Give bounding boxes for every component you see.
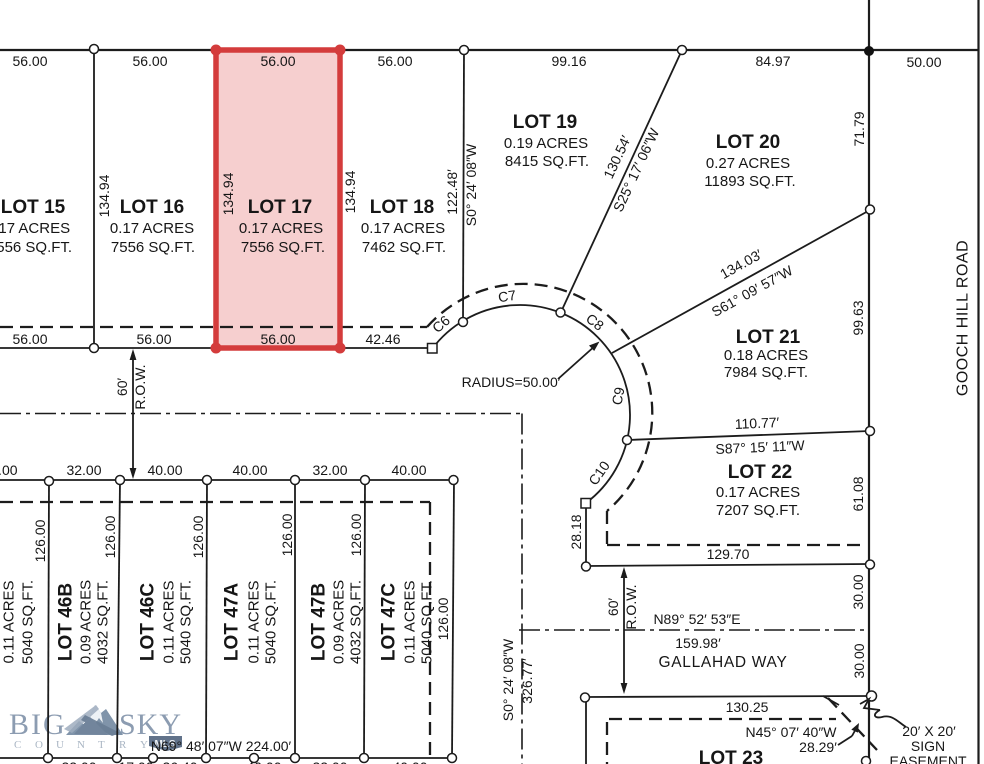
svg-text:130.25: 130.25 <box>726 699 769 715</box>
svg-text:126.00: 126.00 <box>32 519 48 562</box>
svg-text:7462 SQ.FT.: 7462 SQ.FT. <box>362 239 446 256</box>
svg-text:S0° 24′ 08″W: S0° 24′ 08″W <box>500 638 516 721</box>
svg-text:R.O.W.: R.O.W. <box>623 584 639 629</box>
svg-text:60′: 60′ <box>114 378 130 397</box>
svg-text:17.00: 17.00 <box>118 759 153 764</box>
svg-text:C9: C9 <box>608 385 627 406</box>
svg-text:GALLAHAD WAY: GALLAHAD WAY <box>659 654 788 671</box>
svg-text:0.17 ACRES: 0.17 ACRES <box>239 220 323 237</box>
svg-text:56.00: 56.00 <box>136 331 171 347</box>
svg-text:LOT 17: LOT 17 <box>248 197 312 218</box>
svg-text:50.00: 50.00 <box>906 54 941 70</box>
svg-text:EASEMENT: EASEMENT <box>889 753 966 764</box>
svg-text:LOT 47A: LOT 47A <box>222 583 243 661</box>
svg-text:LOT 19: LOT 19 <box>513 112 577 133</box>
svg-text:61.08: 61.08 <box>850 476 866 511</box>
svg-text:0.27 ACRES: 0.27 ACRES <box>706 155 790 172</box>
svg-text:11893 SQ.FT.: 11893 SQ.FT. <box>704 173 795 190</box>
svg-text:0.11 ACRES: 0.11 ACRES <box>161 580 178 663</box>
svg-text:326.77′: 326.77′ <box>519 658 535 704</box>
svg-text:O: O <box>35 739 43 751</box>
svg-text:GOOCH HILL ROAD: GOOCH HILL ROAD <box>955 240 972 396</box>
svg-text:30.00: 30.00 <box>851 643 867 678</box>
svg-text:C7: C7 <box>497 287 517 305</box>
svg-text:40.00: 40.00 <box>246 759 281 764</box>
svg-text:40.00: 40.00 <box>391 462 426 478</box>
svg-text:5040 SQ.FT.: 5040 SQ.FT. <box>263 580 280 664</box>
svg-text:4032 SQ.FT.: 4032 SQ.FT. <box>95 580 112 664</box>
svg-text:40.00: 40.00 <box>232 462 267 478</box>
svg-text:LOT 46B: LOT 46B <box>56 583 77 661</box>
svg-text:56.00: 56.00 <box>377 53 412 69</box>
svg-text:LOT 18: LOT 18 <box>370 197 434 218</box>
svg-text:RADIUS=50.00′: RADIUS=50.00′ <box>462 374 561 390</box>
svg-text:7207 SQ.FT.: 7207 SQ.FT. <box>716 502 800 519</box>
svg-text:134.94: 134.94 <box>220 172 236 215</box>
svg-text:42.46: 42.46 <box>365 331 400 347</box>
svg-text:56.00: 56.00 <box>260 331 295 347</box>
svg-text:LOT 20: LOT 20 <box>716 132 780 153</box>
svg-text:Y: Y <box>140 739 148 751</box>
svg-text:N69° 48′ 07″W 224.00′: N69° 48′ 07″W 224.00′ <box>151 738 292 754</box>
svg-text:134.94: 134.94 <box>96 174 112 217</box>
svg-text:159.98′: 159.98′ <box>675 635 721 651</box>
svg-text:U: U <box>56 739 64 751</box>
svg-text:56.00: 56.00 <box>12 331 47 347</box>
svg-text:0.11 ACRES: 0.11 ACRES <box>402 580 419 663</box>
svg-text:32.00: 32.00 <box>312 759 347 764</box>
svg-text:122.48′: 122.48′ <box>444 169 460 215</box>
svg-text:60′: 60′ <box>605 598 621 617</box>
svg-text:T: T <box>98 739 105 751</box>
svg-text:28.18: 28.18 <box>568 514 584 549</box>
svg-text:40.00: 40.00 <box>147 462 182 478</box>
svg-text:LOT 15: LOT 15 <box>1 197 66 218</box>
svg-text:126.00: 126.00 <box>348 513 364 556</box>
svg-text:0.09 ACRES: 0.09 ACRES <box>331 580 348 664</box>
svg-text:0.09 ACRES: 0.09 ACRES <box>78 580 95 664</box>
svg-text:28.29′: 28.29′ <box>799 739 837 755</box>
svg-text:5040 SQ.FT.: 5040 SQ.FT. <box>20 580 37 664</box>
svg-text:7556 SQ.FT.: 7556 SQ.FT. <box>111 239 195 256</box>
svg-text:LOT 22: LOT 22 <box>728 462 792 483</box>
svg-text:30.00: 30.00 <box>850 574 866 609</box>
svg-text:R.O.W.: R.O.W. <box>132 364 148 409</box>
svg-text:99.16: 99.16 <box>551 53 586 69</box>
svg-text:126.00: 126.00 <box>190 515 206 558</box>
svg-text:7556 SQ.FT.: 7556 SQ.FT. <box>0 239 72 256</box>
svg-text:0.11 ACRES: 0.11 ACRES <box>246 580 263 663</box>
svg-text:56.00: 56.00 <box>12 53 47 69</box>
svg-text:BIG: BIG <box>9 708 67 741</box>
svg-text:110.77′: 110.77′ <box>734 414 779 432</box>
svg-text:0.17 ACRES: 0.17 ACRES <box>716 484 800 501</box>
svg-text:32.00: 32.00 <box>312 462 347 478</box>
svg-text:84.97: 84.97 <box>755 53 790 69</box>
svg-text:0.17 ACRES: 0.17 ACRES <box>0 220 70 237</box>
svg-text:126.00: 126.00 <box>435 597 451 640</box>
svg-text:0.19 ACRES: 0.19 ACRES <box>504 135 588 152</box>
svg-text:56.00: 56.00 <box>132 53 167 69</box>
svg-text:SIGN: SIGN <box>911 738 945 754</box>
svg-text:C: C <box>14 739 21 751</box>
svg-text:LOT 46C: LOT 46C <box>138 583 159 661</box>
svg-text:LOT 21: LOT 21 <box>736 327 801 348</box>
svg-text:LOT 47C: LOT 47C <box>379 583 400 661</box>
svg-text:7556 SQ.FT.: 7556 SQ.FT. <box>241 239 325 256</box>
svg-text:LOT 23: LOT 23 <box>699 748 763 764</box>
svg-text:32.00: 32.00 <box>66 462 101 478</box>
svg-text:5040 SQ.FT.: 5040 SQ.FT. <box>419 580 436 664</box>
svg-text:N: N <box>77 739 85 751</box>
svg-text:134.94: 134.94 <box>342 170 358 213</box>
svg-text:LOT 16: LOT 16 <box>120 197 184 218</box>
svg-text:7984 SQ.FT.: 7984 SQ.FT. <box>724 364 808 381</box>
svg-text:32.00: 32.00 <box>61 759 96 764</box>
svg-text:40.00: 40.00 <box>0 462 18 478</box>
svg-text:56.00: 56.00 <box>260 53 295 69</box>
svg-text:0.18 ACRES: 0.18 ACRES <box>724 347 808 364</box>
svg-text:126.00: 126.00 <box>279 513 295 556</box>
svg-text:0.17 ACRES: 0.17 ACRES <box>110 220 194 237</box>
svg-text:26.40: 26.40 <box>162 759 197 764</box>
svg-text:99.63: 99.63 <box>850 300 866 335</box>
svg-text:5040 SQ.FT.: 5040 SQ.FT. <box>178 580 195 664</box>
svg-text:R: R <box>119 739 127 751</box>
svg-text:N89° 52′ 53″E: N89° 52′ 53″E <box>653 611 740 627</box>
svg-text:40.00: 40.00 <box>392 759 427 764</box>
svg-text:0.11 ACRES: 0.11 ACRES <box>1 580 18 663</box>
svg-text:LOT 47B: LOT 47B <box>309 583 330 661</box>
svg-text:71.79: 71.79 <box>851 111 867 146</box>
svg-text:8415 SQ.FT.: 8415 SQ.FT. <box>505 153 589 170</box>
svg-text:N45° 07′ 40″W: N45° 07′ 40″W <box>746 724 838 740</box>
svg-text:126.00: 126.00 <box>102 515 118 558</box>
svg-text:4032 SQ.FT.: 4032 SQ.FT. <box>348 580 365 664</box>
svg-text:S0° 24′ 08″W: S0° 24′ 08″W <box>463 143 479 226</box>
svg-text:0.17 ACRES: 0.17 ACRES <box>361 220 445 237</box>
svg-text:129.70: 129.70 <box>707 546 750 562</box>
svg-text:20′ X 20′: 20′ X 20′ <box>902 723 956 739</box>
